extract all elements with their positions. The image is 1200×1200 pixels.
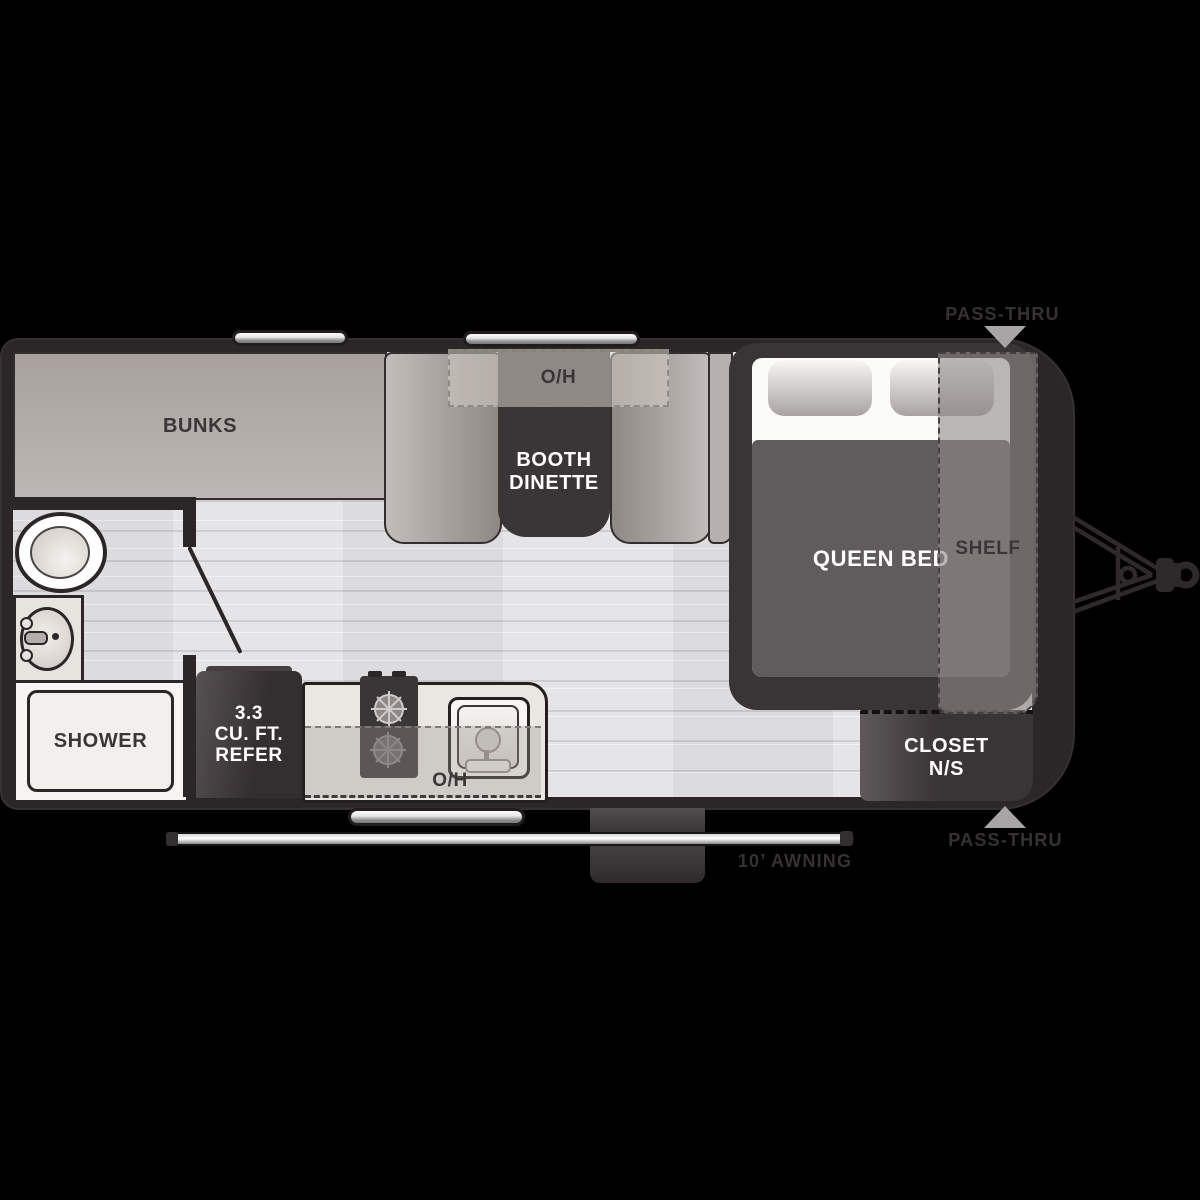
overhead-cabinet-kitchen: O/H xyxy=(305,726,541,798)
shower-label: SHOWER xyxy=(54,730,148,753)
overhead-cabinet-dinette: O/H xyxy=(448,349,669,407)
dinette-label-line1: BOOTH xyxy=(516,449,591,472)
window-bottom-kitchen xyxy=(348,808,525,826)
closet-label-line2: N/S xyxy=(929,758,964,781)
pass-thru-label-bottom: PASS-THRU xyxy=(903,830,1108,851)
faucet-icon xyxy=(24,631,48,645)
refer-label-line2: CU. FT. xyxy=(215,724,284,745)
bathroom-wall-stub xyxy=(183,497,196,547)
closet: CLOSET N/S xyxy=(860,710,1033,801)
cooktop-knob-icon xyxy=(392,671,406,677)
bathroom-wall-lower xyxy=(183,655,196,797)
bunks-label: BUNKS xyxy=(163,415,237,438)
faucet-knob-icon xyxy=(20,617,33,630)
kitchen-oh-label: O/H xyxy=(410,770,490,792)
hitch-icon xyxy=(1060,495,1200,655)
dinette-oh-label: O/H xyxy=(541,367,577,389)
refrigerator: 3.3 CU. FT. REFER xyxy=(196,671,302,798)
refer-label-line1: 3.3 xyxy=(235,703,263,724)
toilet-bowl xyxy=(30,526,90,579)
window-top-dinette xyxy=(463,331,640,347)
awning-bar xyxy=(168,832,854,846)
queen-bed-label: QUEEN BED xyxy=(813,546,949,572)
shelf-overlay: SHELF xyxy=(938,352,1038,714)
faucet-knob-icon xyxy=(20,649,33,662)
bathroom-wall-top xyxy=(2,497,196,510)
pass-thru-arrow-bottom xyxy=(984,806,1026,828)
awning-label: 10’ AWNING xyxy=(700,851,890,872)
dinette-label-line2: DINETTE xyxy=(509,472,599,495)
shower: SHOWER xyxy=(27,690,174,792)
floorplan-canvas: BUNKS SHOWER 3.3 CU. FT. REFER xyxy=(0,0,1200,1200)
pass-thru-arrow-top xyxy=(984,326,1026,348)
bunks-area: BUNKS xyxy=(13,352,387,500)
shelf-label: SHELF xyxy=(940,538,1036,560)
refer-label-line3: REFER xyxy=(215,745,282,766)
pass-thru-label-top: PASS-THRU xyxy=(900,304,1105,325)
drain-icon xyxy=(52,633,59,640)
window-top-left xyxy=(232,330,348,346)
cooktop-knob-icon xyxy=(368,671,382,677)
closet-label-line1: CLOSET xyxy=(904,735,989,758)
pillow-icon xyxy=(768,360,872,416)
